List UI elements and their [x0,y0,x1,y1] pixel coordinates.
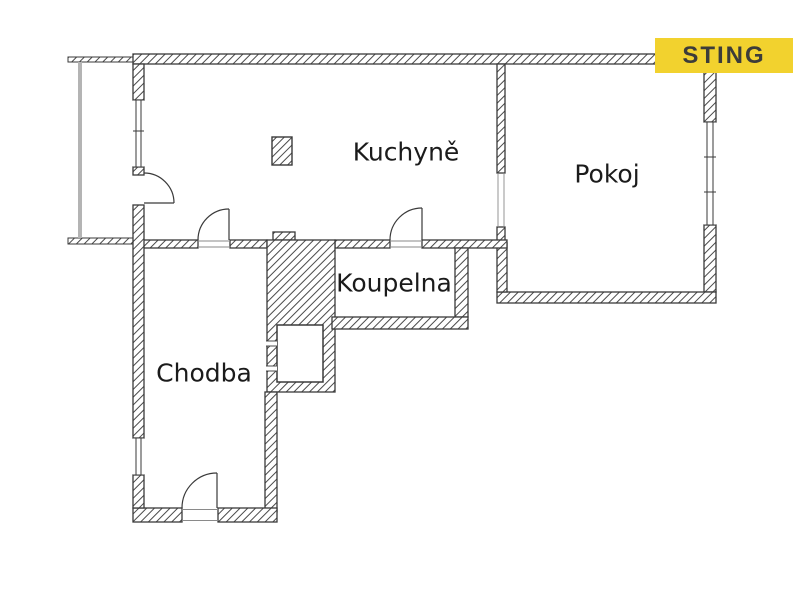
door-chodba-to-kitchen [198,209,229,240]
door-balcony [144,173,174,203]
floor-plan-drawing [0,0,800,599]
wall-pier-notch [273,232,295,240]
wall-left-3 [133,205,144,438]
wall-pokoj-left-stub [497,243,507,292]
floor-plan-page: Kuchyně Pokoj Koupelna Chodba STING [0,0,800,599]
room-label-koupelna: Koupelna [336,269,452,298]
wall-kitchen-south-c [335,240,390,248]
door-koupelna-to-kitchen [390,208,422,240]
wall-kitchen-south-a [143,240,198,248]
door-entrance [182,473,217,508]
room-label-kuchyne: Kuchyně [353,138,460,167]
column-icon [272,137,292,165]
wall-kitchen-south-b [230,240,267,248]
wall-bottom-left [133,508,182,522]
wall-bottom-right [218,508,277,522]
balcony-railing-line [78,62,82,238]
wall-kitchen-south-d [422,240,507,248]
wall-right-lower [704,225,716,292]
wall-chodba-right [265,392,277,512]
wall-left-2 [133,167,144,175]
room-label-chodba: Chodba [156,359,252,388]
balcony-bottom-rail [68,238,133,244]
wall-koupelna-right [455,248,468,317]
wall-top [133,54,716,64]
wall-left-1 [133,64,144,100]
wall-koupelna-bottom [332,317,468,329]
window-chodba [133,438,144,475]
wall-pokoj-bottom [497,292,716,303]
balcony-top-rail [68,57,133,62]
sting-logo-text: STING [682,42,765,70]
window-pokoj [704,122,716,225]
sting-logo: STING [655,38,793,73]
wall-kitchen-pokoj-upper [497,64,505,173]
wall-left-4 [133,475,144,508]
room-label-pokoj: Pokoj [574,160,639,189]
openings [182,173,504,521]
window-kitchen [133,100,144,167]
shaft-square [277,325,323,382]
balcony [68,57,133,244]
